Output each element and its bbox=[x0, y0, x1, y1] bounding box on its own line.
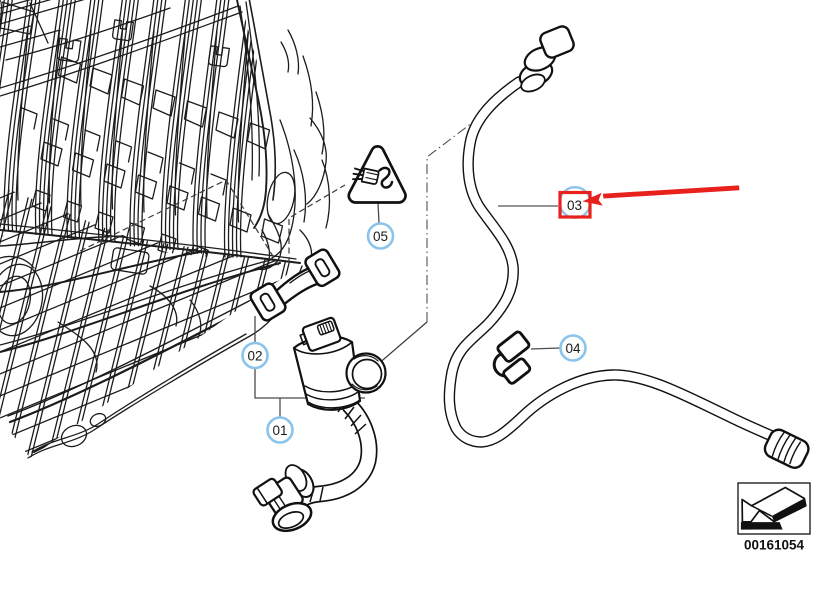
svg-text:02: 02 bbox=[247, 348, 262, 363]
svg-text:01: 01 bbox=[272, 423, 287, 438]
svg-text:04: 04 bbox=[565, 341, 581, 356]
svg-text:00161054: 00161054 bbox=[744, 538, 805, 553]
svg-text:03: 03 bbox=[567, 198, 582, 213]
svg-text:05: 05 bbox=[373, 229, 388, 244]
